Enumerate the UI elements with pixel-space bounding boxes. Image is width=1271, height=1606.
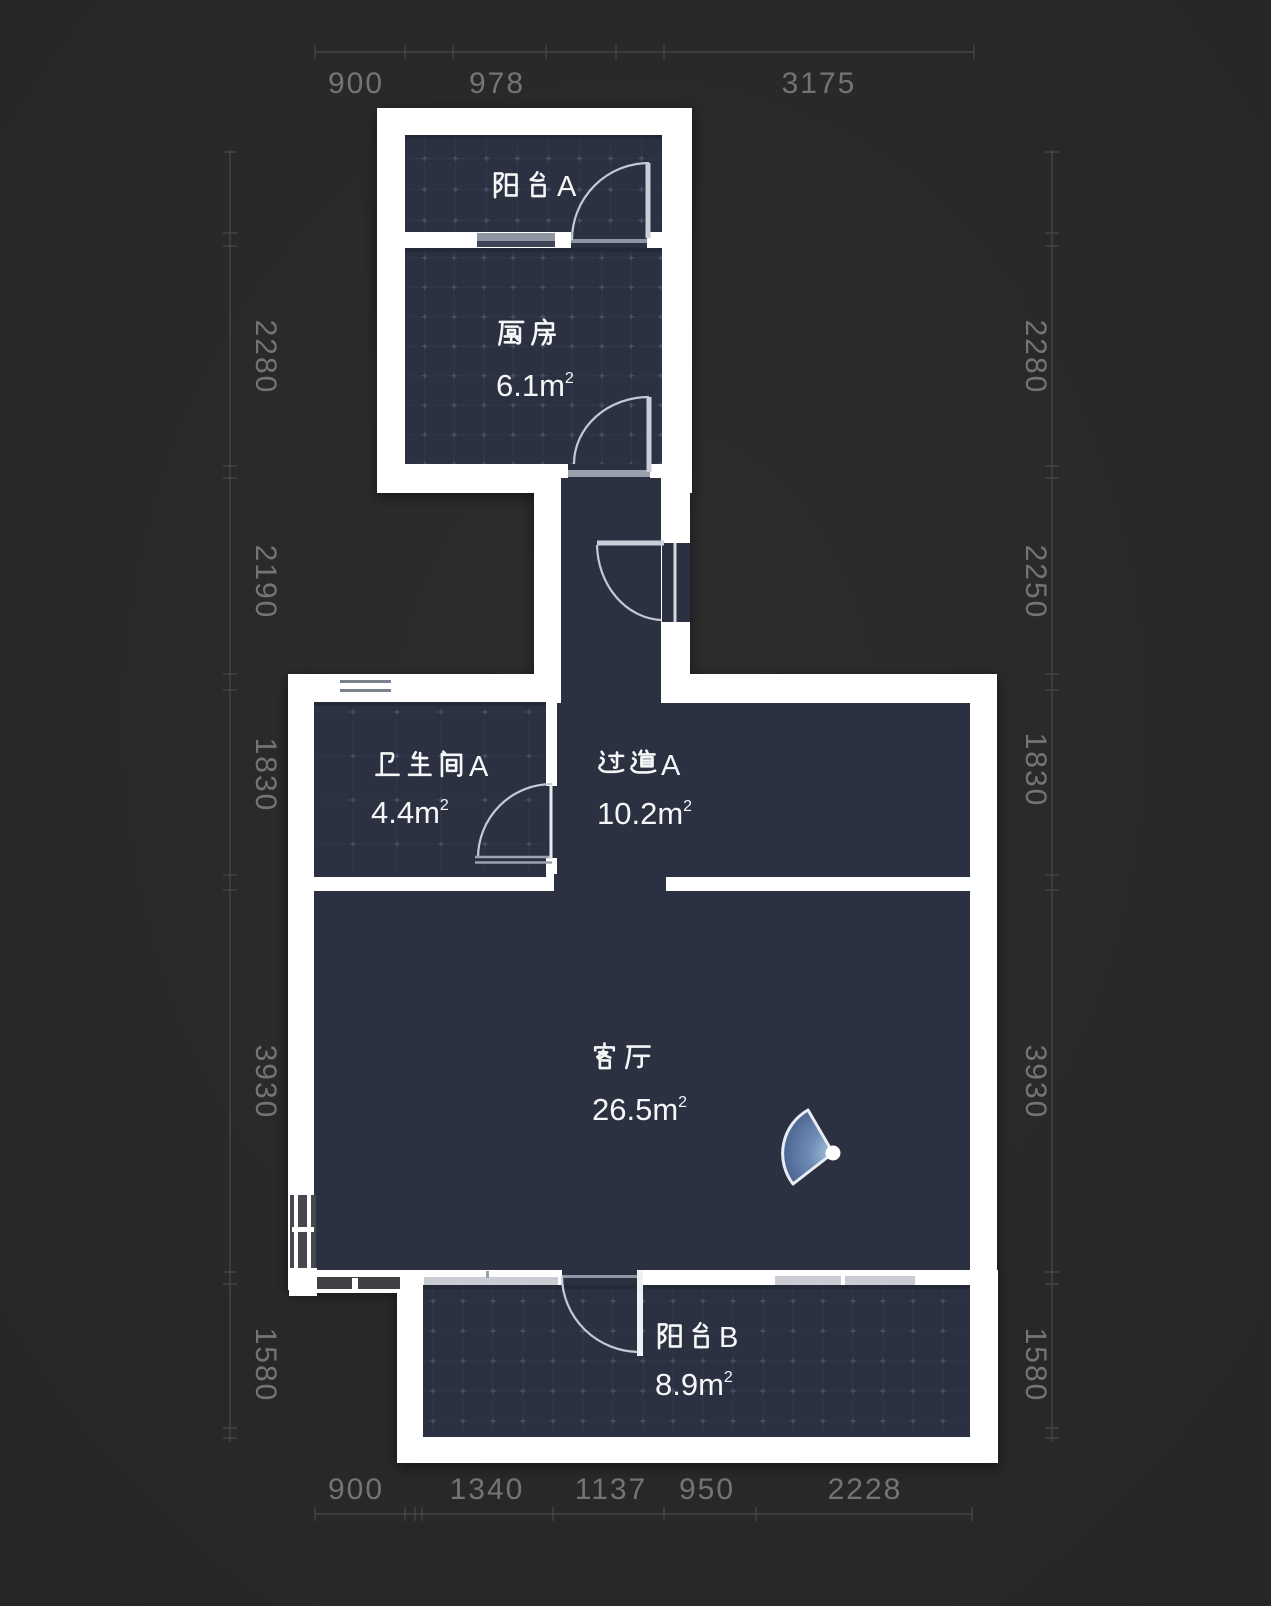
svg-text:3175: 3175 [782,67,857,100]
svg-text:A: A [557,171,577,203]
svg-text:900: 900 [328,1473,384,1506]
svg-text:978: 978 [469,67,525,100]
svg-text:1580: 1580 [1019,1328,1052,1403]
svg-text:A: A [469,751,489,783]
svg-text:950: 950 [679,1473,735,1506]
svg-text:1137: 1137 [575,1473,648,1506]
svg-text:1580: 1580 [249,1328,282,1403]
svg-text:8.9m2: 8.9m2 [655,1367,733,1402]
svg-text:2280: 2280 [249,320,282,395]
svg-text:4.4m2: 4.4m2 [371,795,449,830]
svg-text:10.2m2: 10.2m2 [597,796,692,831]
svg-text:2250: 2250 [1019,545,1052,620]
svg-text:B: B [719,1322,738,1354]
svg-text:1830: 1830 [1019,733,1052,808]
svg-text:2228: 2228 [828,1473,903,1506]
svg-text:1340: 1340 [450,1473,525,1506]
svg-text:6.1m2: 6.1m2 [496,368,574,403]
svg-text:3930: 3930 [249,1045,282,1120]
svg-text:2280: 2280 [1019,320,1052,395]
svg-text:3930: 3930 [1019,1045,1052,1120]
svg-text:900: 900 [328,67,384,100]
svg-text:2190: 2190 [249,545,282,620]
svg-text:26.5m2: 26.5m2 [592,1092,687,1127]
svg-text:A: A [661,750,681,782]
svg-text:1830: 1830 [249,738,282,813]
